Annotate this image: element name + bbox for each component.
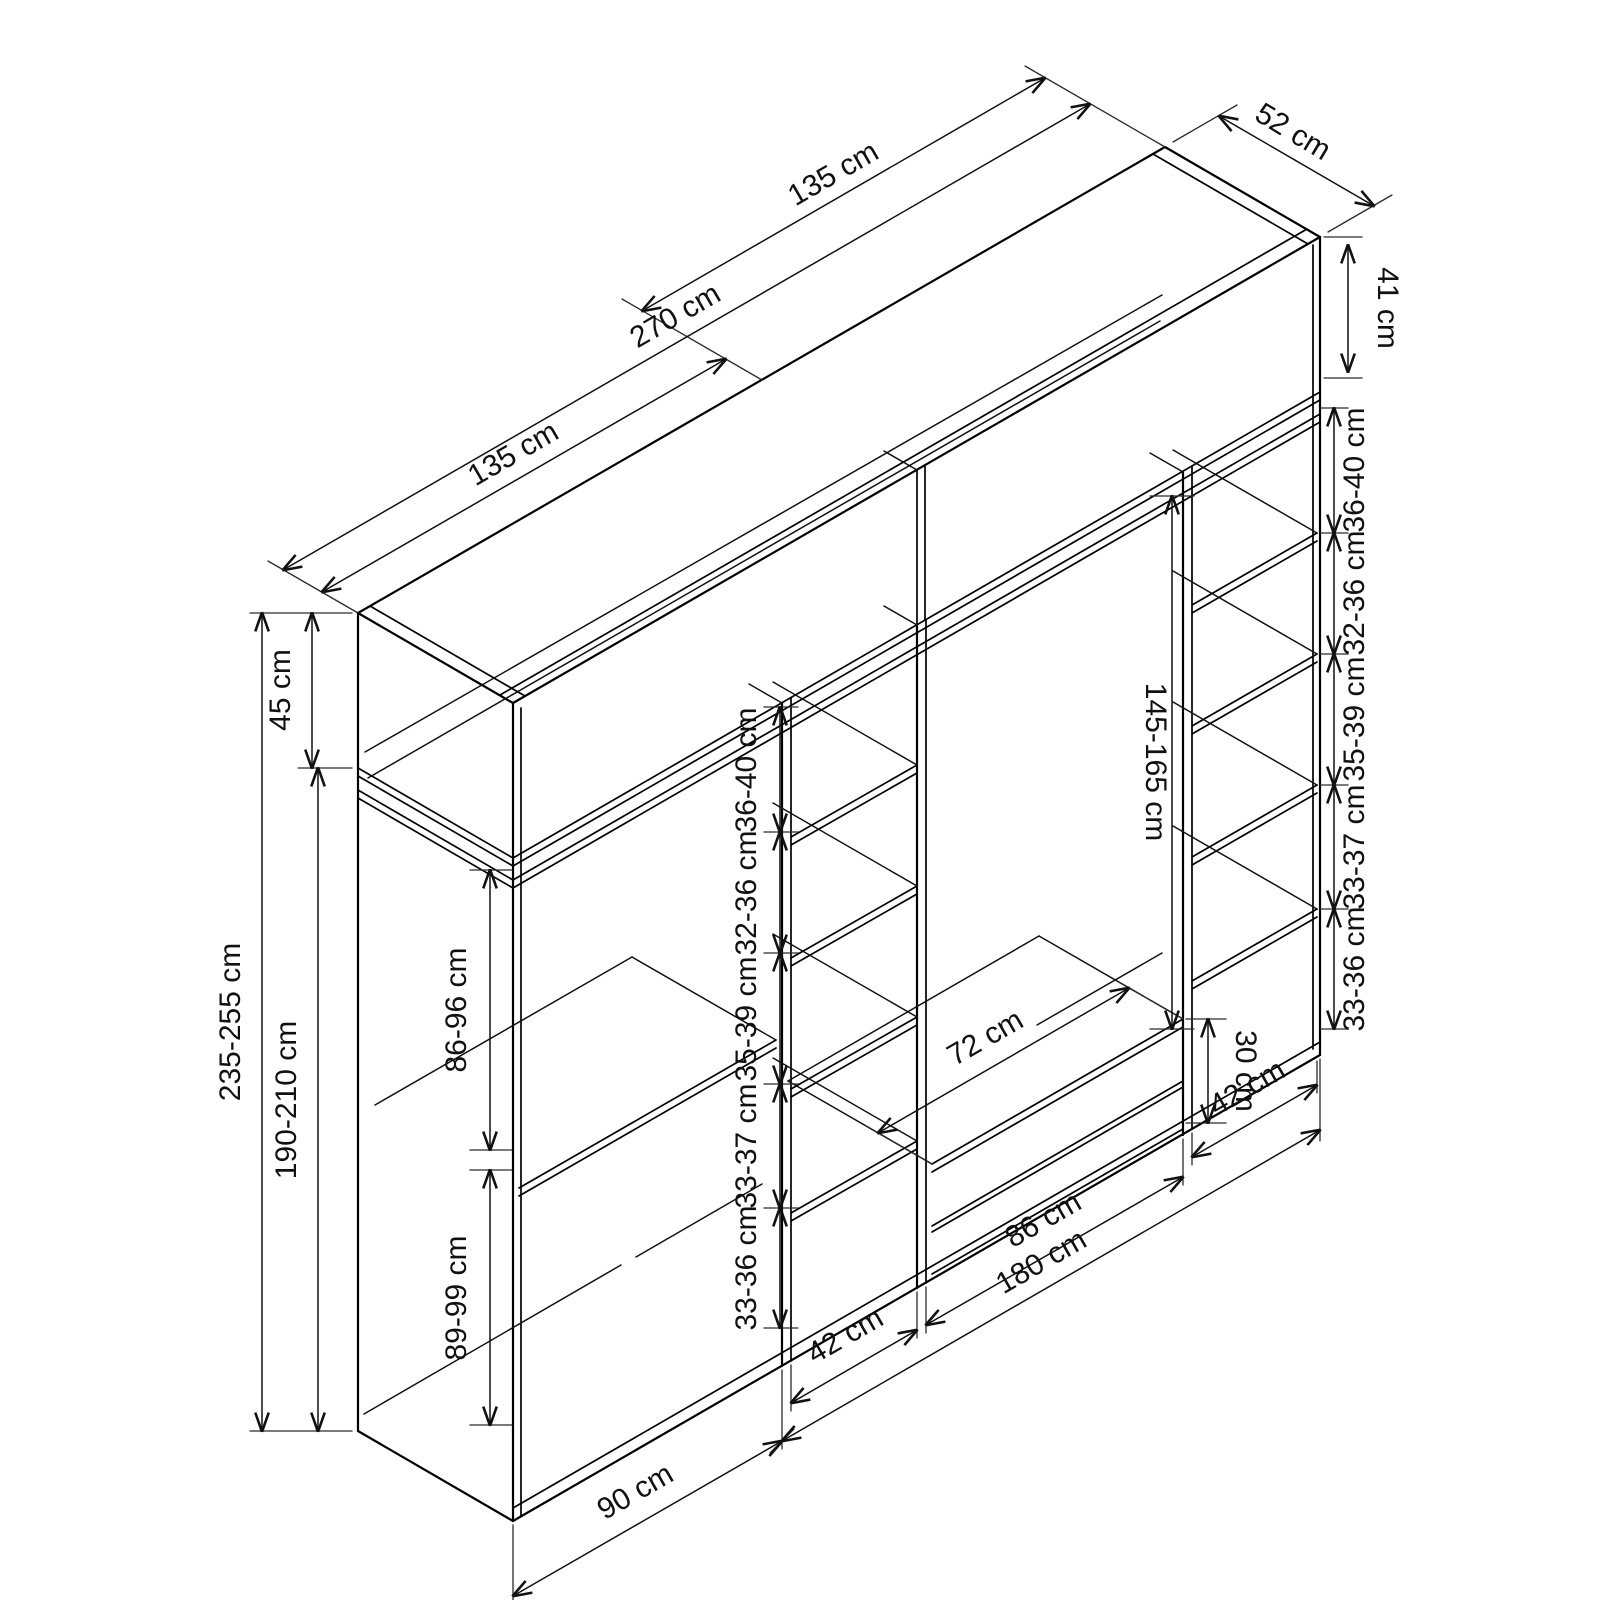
dim-right-shelf-4: 33-37 cm (1338, 784, 1371, 909)
cabinet-outline (358, 147, 1320, 1521)
right-column-shelves (1173, 450, 1317, 989)
left-cabinet-shelf (375, 957, 776, 1196)
dim-mid-shelf-4: 33-37 cm (730, 1083, 763, 1208)
dim-left-upper-space: 86-96 cm (440, 947, 473, 1072)
dim-body-height: 190-210 cm (270, 1021, 303, 1179)
dim-mid-shelf-1: 36-40 cm (730, 707, 763, 832)
dim-mid-shelf-3: 35-39 cm (730, 956, 763, 1081)
dim-mid-shelf-2: 32-36 cm (730, 830, 763, 955)
dim-upper-left-height: 45 cm (264, 649, 297, 731)
dim-mid-shelf-5: 33-36 cm (730, 1205, 763, 1330)
middle-column-shelves (773, 682, 917, 1221)
diagram-canvas: 135 cm 270 cm 135 cm 52 cm 45 cm 235-255… (0, 0, 1599, 1600)
dim-bottom-left-column: 42 cm (802, 1301, 889, 1370)
vertical-partitions (749, 453, 1192, 1366)
dim-right-shelf-3: 35-39 cm (1338, 656, 1371, 781)
wardrobe-dimension-drawing: 135 cm 270 cm 135 cm 52 cm 45 cm 235-255… (0, 0, 1599, 1600)
drawer-unit (788, 936, 1183, 1274)
dimension-extension-lines (250, 66, 1392, 1600)
dim-upper-right-height: 41 cm (1371, 267, 1404, 349)
dim-right-shelf-5: 33-36 cm (1338, 906, 1371, 1031)
dim-left-lower-space: 89-99 cm (440, 1235, 473, 1360)
dim-right-shelf-1: 36-40 cm (1338, 407, 1371, 532)
dim-total-height: 235-255 cm (214, 943, 247, 1101)
dim-right-shelf-2: 32-36 cm (1338, 530, 1371, 655)
dim-depth: 52 cm (1249, 97, 1336, 167)
dimension-labels: 135 cm 270 cm 135 cm 52 cm 45 cm 235-255… (214, 97, 1404, 1527)
dim-drawer-top-width: 72 cm (942, 1003, 1029, 1072)
dim-hanging-space: 145-165 cm (1139, 683, 1172, 841)
